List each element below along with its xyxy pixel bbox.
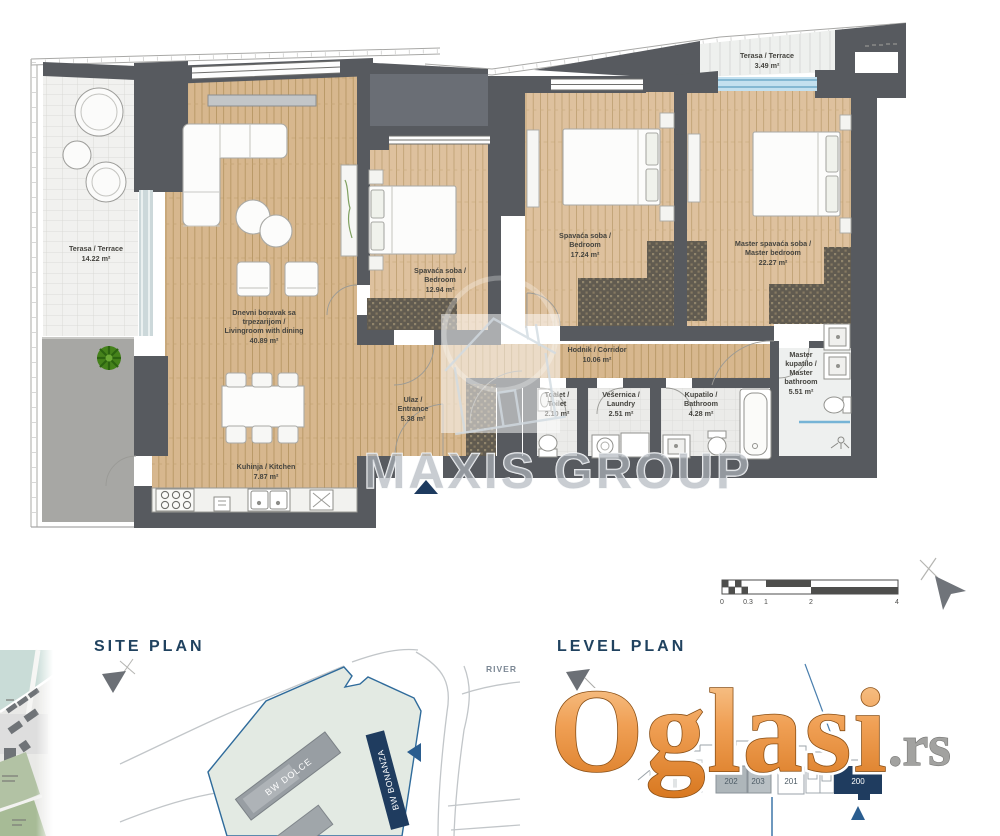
svg-text:2: 2 — [809, 599, 813, 606]
svg-text:Terasa / Terrace: Terasa / Terrace — [740, 51, 794, 60]
svg-text:Kuhinja / Kitchen: Kuhinja / Kitchen — [237, 462, 296, 471]
svg-text:4.28 m²: 4.28 m² — [689, 409, 714, 418]
svg-text:0.3: 0.3 — [743, 599, 753, 606]
svg-text:22.27 m²: 22.27 m² — [759, 258, 788, 267]
svg-text:Oglasi: Oglasi — [550, 664, 889, 798]
svg-text:3.49 m²: 3.49 m² — [755, 61, 780, 70]
svg-text:7.87 m²: 7.87 m² — [254, 472, 279, 481]
svg-text:SITE PLAN: SITE PLAN — [94, 638, 205, 655]
svg-text:Master: Master — [789, 368, 812, 377]
svg-text:14.22 m²: 14.22 m² — [82, 254, 111, 263]
svg-text:.rs: .rs — [888, 713, 951, 778]
svg-text:Spavaća soba /: Spavaća soba / — [559, 231, 611, 240]
svg-text:17.24 m²: 17.24 m² — [571, 250, 600, 259]
svg-text:1: 1 — [764, 599, 768, 606]
svg-text:Bedroom: Bedroom — [569, 240, 601, 249]
svg-text:2.51 m²: 2.51 m² — [609, 409, 634, 418]
svg-text:LEVEL PLAN: LEVEL PLAN — [557, 638, 686, 655]
svg-text:5.38 m²: 5.38 m² — [401, 414, 426, 423]
svg-text:kupatilo /: kupatilo / — [785, 359, 817, 368]
svg-text:trpezarijom /: trpezarijom / — [243, 317, 286, 326]
svg-text:Bathroom: Bathroom — [684, 399, 718, 408]
svg-text:0: 0 — [720, 599, 724, 606]
svg-text:Livingroom with dining: Livingroom with dining — [224, 326, 303, 335]
svg-text:4: 4 — [895, 599, 899, 606]
svg-text:Laundry: Laundry — [607, 399, 635, 408]
svg-text:Dnevni boravak sa: Dnevni boravak sa — [232, 308, 297, 317]
svg-text:Vešernica /: Vešernica / — [602, 390, 640, 399]
svg-text:Master: Master — [789, 350, 812, 359]
svg-text:bathroom: bathroom — [784, 377, 817, 386]
svg-text:Master bedroom: Master bedroom — [745, 248, 801, 257]
svg-text:Bedroom: Bedroom — [424, 275, 456, 284]
svg-text:40.89 m²: 40.89 m² — [250, 336, 279, 345]
svg-text:MAXIS GROUP: MAXIS GROUP — [364, 443, 753, 499]
svg-text:RIVER: RIVER — [486, 664, 517, 674]
svg-text:5.51 m²: 5.51 m² — [789, 387, 814, 396]
svg-text:Terasa / Terrace: Terasa / Terrace — [69, 244, 123, 253]
svg-text:Ulaz /: Ulaz / — [404, 395, 423, 404]
svg-text:Spavaća soba /: Spavaća soba / — [414, 266, 466, 275]
svg-text:Kupatilo /: Kupatilo / — [685, 390, 718, 399]
svg-text:Hodnik / Corridor: Hodnik / Corridor — [567, 345, 626, 354]
svg-text:10.06 m²: 10.06 m² — [583, 355, 612, 364]
svg-text:Master spavaća soba /: Master spavaća soba / — [735, 239, 811, 248]
svg-text:Entrance: Entrance — [398, 404, 429, 413]
svg-text:12.94 m²: 12.94 m² — [426, 285, 455, 294]
